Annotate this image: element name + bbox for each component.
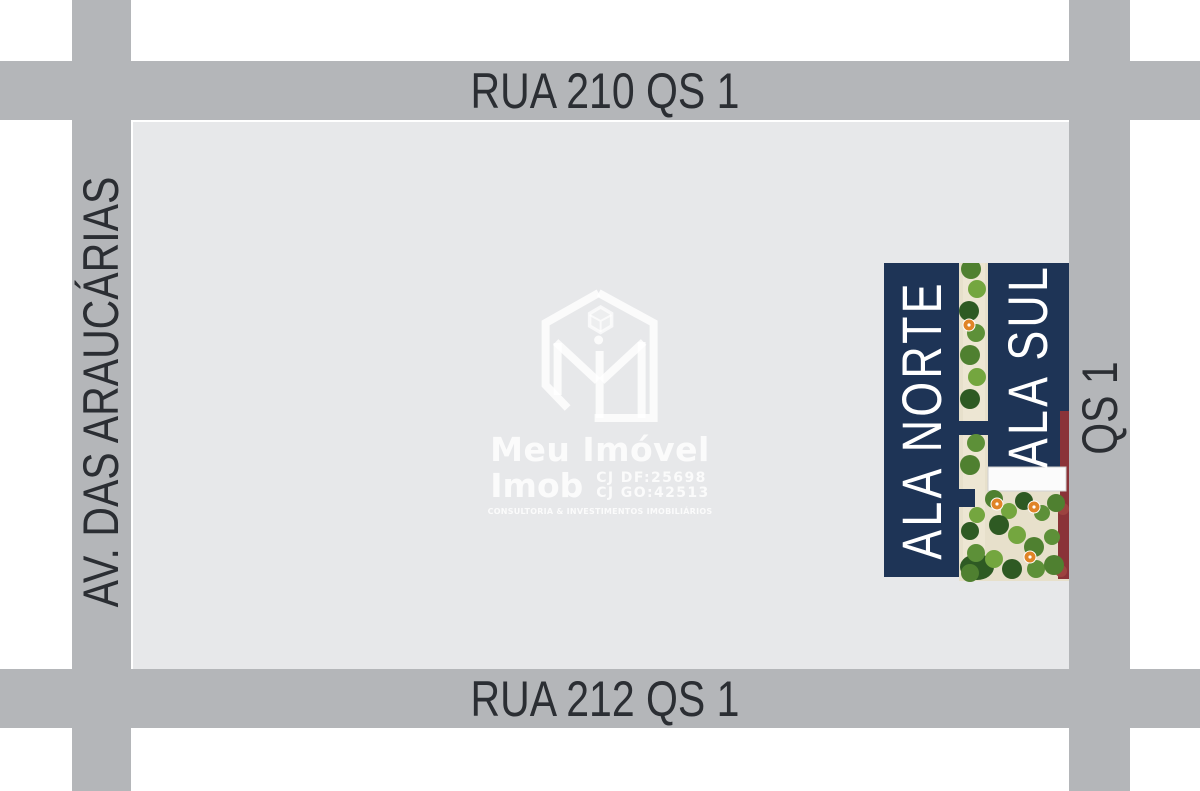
brand-tagline: CONSULTORIA & INVESTIMENTOS IMOBILIÁRIOS [488,507,713,516]
logo-m-left-diagonal [556,342,598,381]
logo-i-dot [594,336,603,345]
registry-go: CJ GO:42513 [596,486,709,500]
logo-shell-left [546,293,599,408]
brand-registrations: CJ DF:25698 CJ GO:42513 [596,471,709,500]
pool-deck [988,467,1066,491]
wing-connector [959,421,988,435]
street-label-av-das-araucarias: AV. DAS ARAUCÁRIAS [76,177,126,608]
street-label-rua-210: RUA 210 QS 1 [471,66,740,116]
logo-m-right-diagonal [602,342,644,381]
brand-watermark: Meu Imóvel Imob CJ DF:25698 CJ GO:42513 … [488,287,713,516]
umbrella-icon [1028,501,1040,513]
umbrella-icon [963,319,975,331]
south-wing-label: ALA SUL [1000,264,1056,468]
brand-name: Meu Imóvel [490,433,710,466]
location-map: RUA 210 QS 1 RUA 212 QS 1 AV. DAS ARAUCÁ… [0,0,1200,791]
brand-row: Imob CJ DF:25698 CJ GO:42513 [490,469,709,502]
street-label-qs1: QS 1 [1075,361,1125,454]
registry-df: CJ DF:25698 [596,471,709,485]
north-wing-label: ALA NORTE [894,280,950,559]
logo-gem-icon [590,307,612,333]
umbrella-icon [1024,551,1036,563]
north-wing-annex [959,489,975,507]
brand-suffix: Imob [490,469,583,502]
umbrella-icon [991,498,1003,510]
street-label-rua-212: RUA 212 QS 1 [471,674,740,724]
meu-imovel-hexagon-m-logo-icon [539,287,661,422]
